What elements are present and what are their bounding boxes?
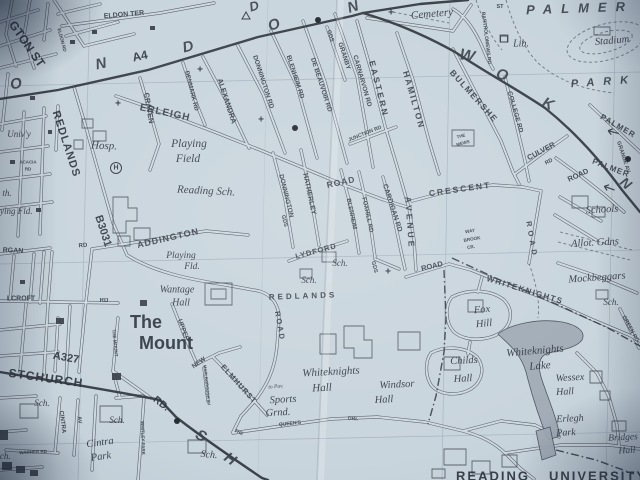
- map-label-hall: Hall: [373, 394, 393, 406]
- map-label-hall: Hall: [171, 298, 190, 309]
- map-label-park: Park: [555, 427, 577, 439]
- map-label-bridges: Bridges: [608, 432, 638, 444]
- map-label-fox: Fox: [472, 304, 491, 316]
- dot-icon: [292, 125, 298, 131]
- map-label-childs: Childs: [450, 355, 478, 367]
- street-map: GTON STELDON TERELDON RDREDLANDSB3031CRA…: [0, 0, 640, 480]
- map-label-dri: DRI.: [348, 416, 359, 423]
- svg-text:+: +: [258, 115, 264, 126]
- map-label-lib: Lib.: [512, 39, 529, 50]
- map-label-lake: Lake: [528, 359, 551, 373]
- svg-text:+: +: [197, 65, 203, 76]
- map-label-rgan: RGAN: [3, 247, 24, 255]
- svg-text:+: +: [385, 267, 391, 278]
- map-label-rd: RD: [25, 167, 31, 172]
- map-label-st: ST: [496, 4, 504, 10]
- map-label-sch: Sch.: [603, 297, 618, 307]
- map-label-reading: READING: [456, 469, 530, 480]
- map-label-lcroft: LCROFT: [7, 296, 36, 303]
- dot-icon: [315, 17, 321, 23]
- cross-icon: +: [258, 115, 264, 126]
- map-label-hall: Hall: [555, 386, 575, 398]
- dot-icon: [174, 418, 180, 424]
- map-label-hall: Hall: [617, 446, 636, 457]
- map-label-univ-y: Univ'y: [7, 129, 30, 139]
- svg-text:+: +: [388, 8, 394, 19]
- map-label-sports: Sports: [269, 394, 296, 406]
- map-label-av: AV: [76, 416, 83, 424]
- cross-icon: +: [115, 99, 121, 110]
- map-label-playing: Playing: [170, 138, 207, 150]
- map-label-field: Field: [175, 153, 201, 165]
- map-label-sch: Sch.: [109, 415, 124, 425]
- map-label-hall: Hall: [311, 381, 332, 394]
- dot-icon: [625, 156, 631, 162]
- svg-text:+: +: [115, 99, 121, 110]
- map-label-sch: Sch.: [34, 398, 49, 408]
- map-label-grnd: Grnd.: [265, 407, 290, 419]
- map-label-windsor: Windsor: [379, 379, 415, 392]
- map-label-sch: Sch.: [301, 275, 316, 285]
- map-label-rd: RD: [78, 243, 88, 250]
- map-label-hosp: Hosp.: [90, 140, 117, 153]
- map-label-erlegh: Erlegh: [555, 413, 584, 425]
- map-label-sch: Sch.: [0, 451, 11, 461]
- map-label-playing: Playing: [165, 251, 196, 261]
- cross-icon: +: [197, 65, 203, 76]
- map-label-wantage: Wantage: [160, 285, 195, 296]
- map-label-sch: Sch.: [200, 449, 218, 461]
- map-label-hill: Hill: [474, 318, 492, 330]
- cross-icon: +: [385, 267, 391, 278]
- map-label-the: The: [130, 312, 162, 332]
- map-label-university: UNIVERSITY: [549, 469, 640, 480]
- map-photo-stage: GTON STELDON TERELDON RDREDLANDSB3031CRA…: [0, 0, 640, 480]
- map-label-fld: Fld.: [183, 262, 200, 272]
- map-label-playing-fld: Playing Fld.: [0, 206, 33, 216]
- svg-text:H: H: [113, 165, 118, 172]
- map-label-rd: RD: [100, 298, 109, 304]
- map-label-hall: Hall: [452, 373, 472, 385]
- map-label-sch: Sch.: [332, 258, 347, 268]
- map-label-acacia: ACACIA: [19, 160, 37, 165]
- map-label-schools: Schools: [585, 204, 618, 217]
- map-label-mount: Mount: [139, 333, 193, 353]
- cross-icon: +: [388, 8, 394, 19]
- map-label-wessex: Wessex: [555, 372, 585, 385]
- map-label-th: th.: [2, 188, 11, 198]
